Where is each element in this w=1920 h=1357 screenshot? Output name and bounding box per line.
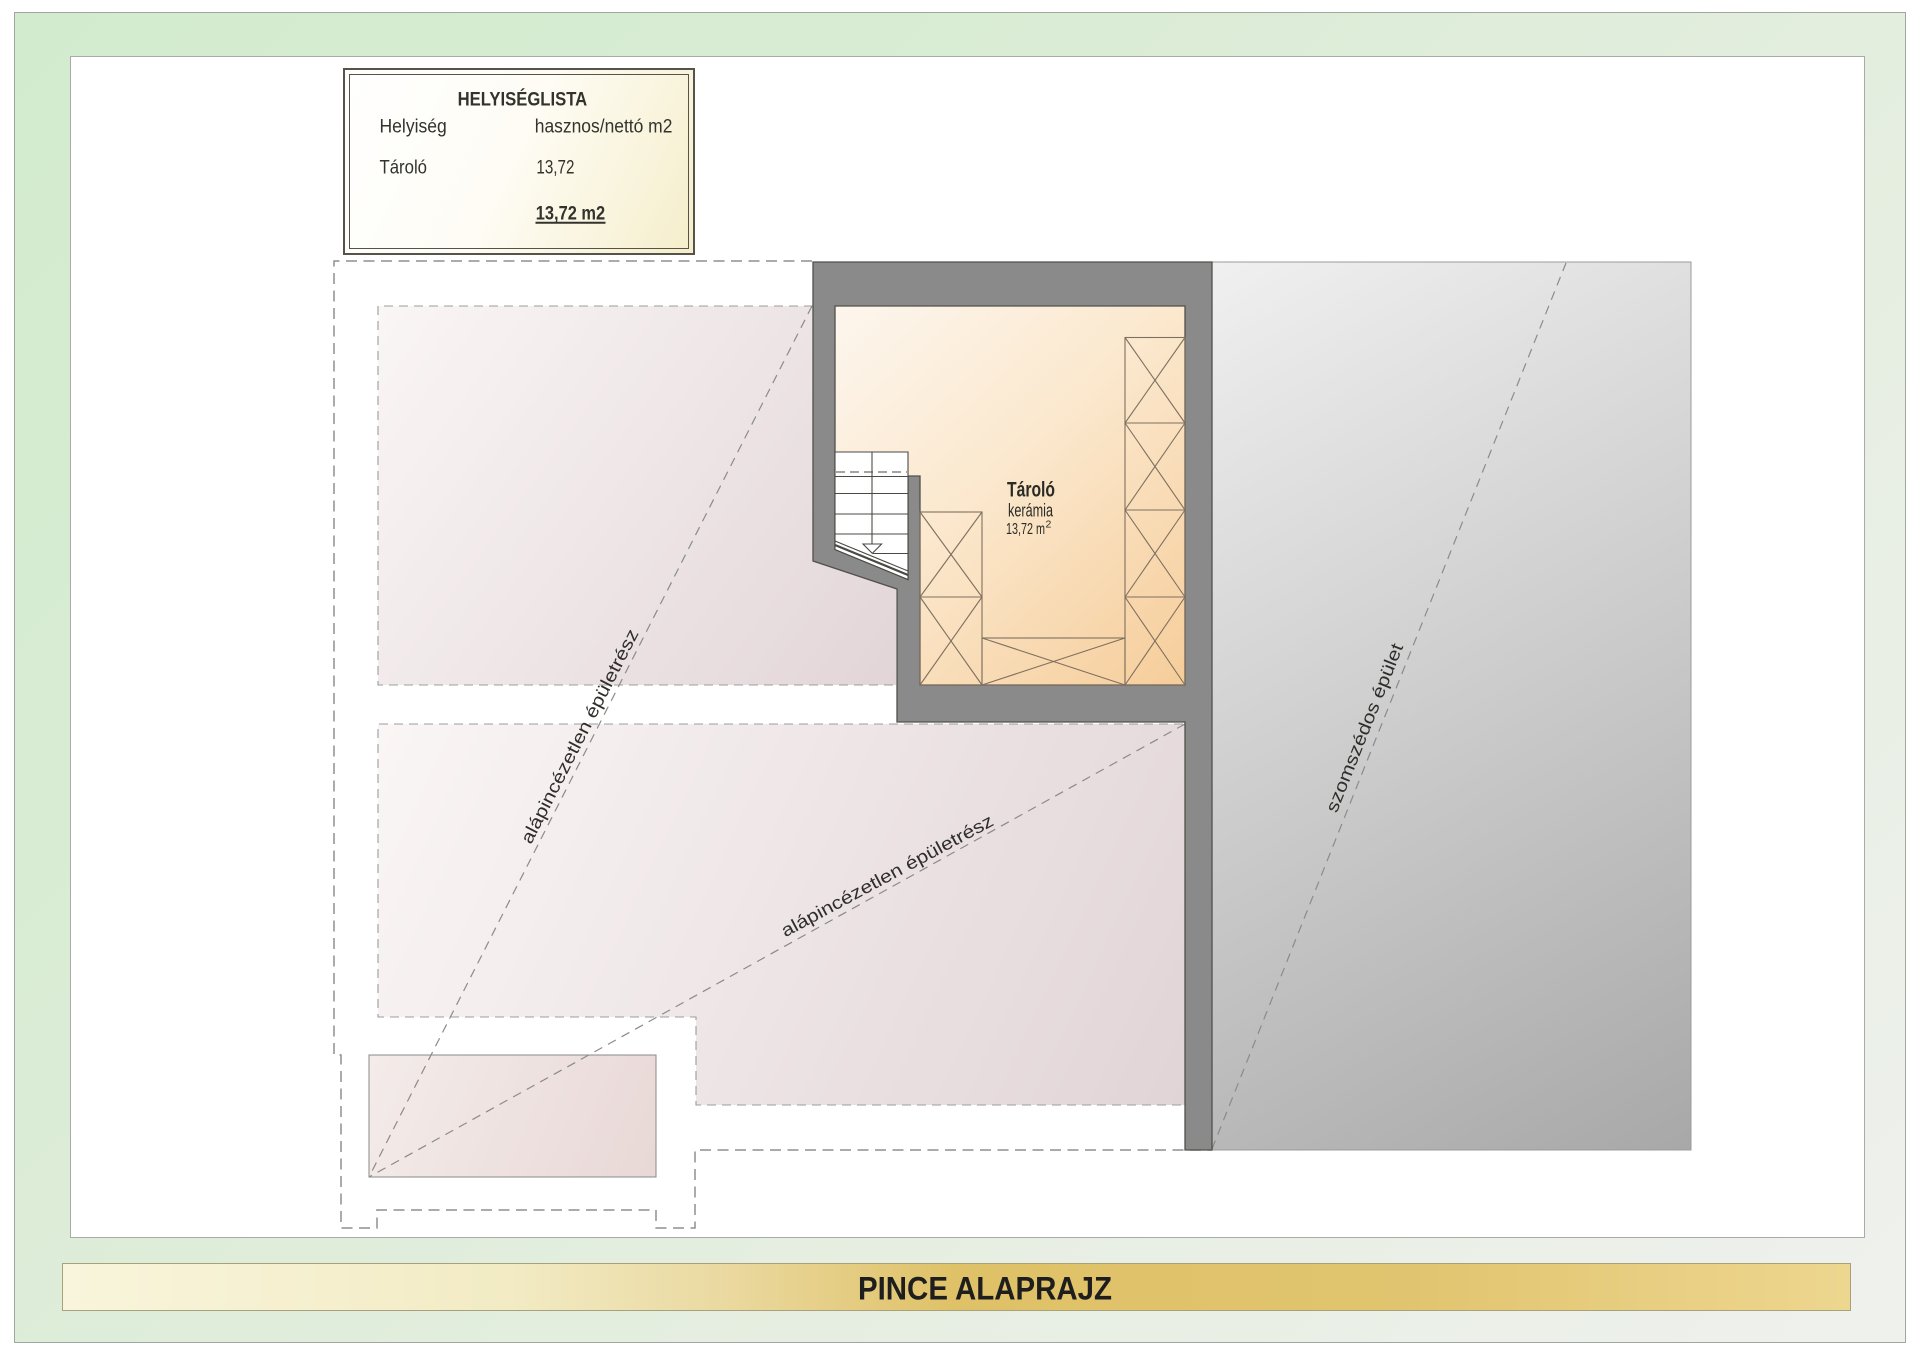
svg-text:13,72 m2: 13,72 m2 <box>536 203 605 224</box>
svg-text:HELYISÉGLISTA: HELYISÉGLISTA <box>458 88 588 111</box>
svg-text:PINCE ALAPRAJZ: PINCE ALAPRAJZ <box>858 1271 1112 1307</box>
svg-text:hasznos/nettó m2: hasznos/nettó m2 <box>535 117 673 138</box>
svg-text:2: 2 <box>1046 519 1052 531</box>
svg-text:Tároló: Tároló <box>1007 479 1055 502</box>
svg-text:13,72 m: 13,72 m <box>1006 521 1045 538</box>
svg-text:Tároló: Tároló <box>380 158 428 179</box>
svg-text:13,72: 13,72 <box>536 158 574 179</box>
svg-text:Helyiség: Helyiség <box>380 117 447 138</box>
svg-text:kerámia: kerámia <box>1008 500 1054 520</box>
